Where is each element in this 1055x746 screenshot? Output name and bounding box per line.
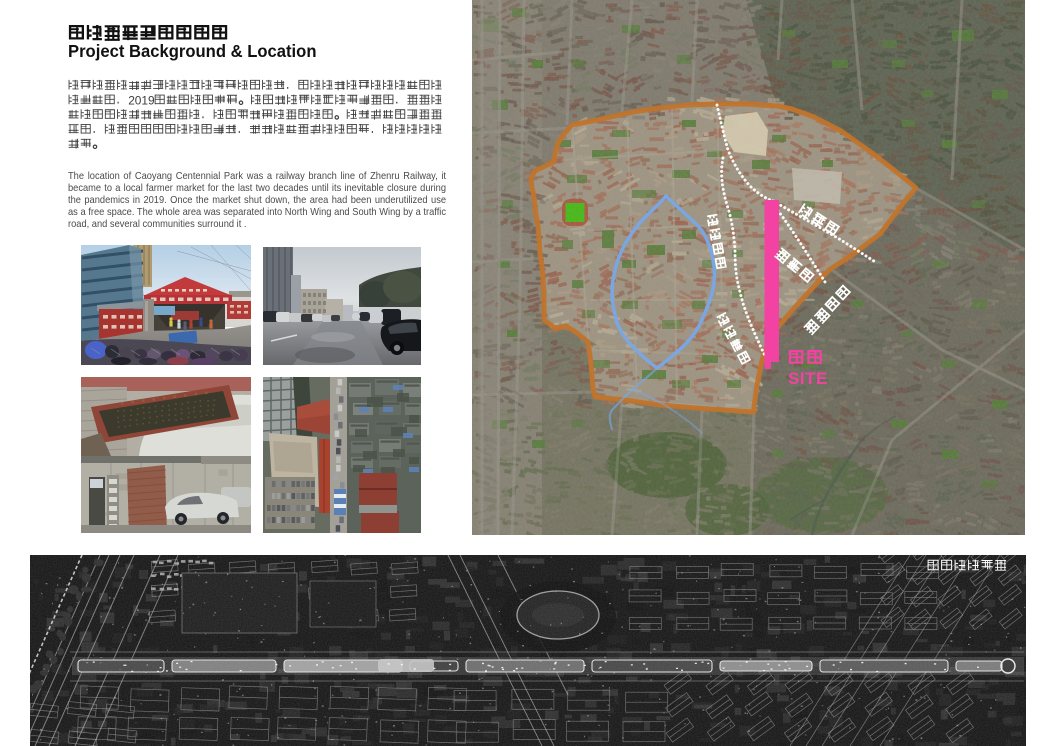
svg-text:SITE: SITE [788,369,828,388]
svg-text:2019: 2019 [128,93,155,107]
